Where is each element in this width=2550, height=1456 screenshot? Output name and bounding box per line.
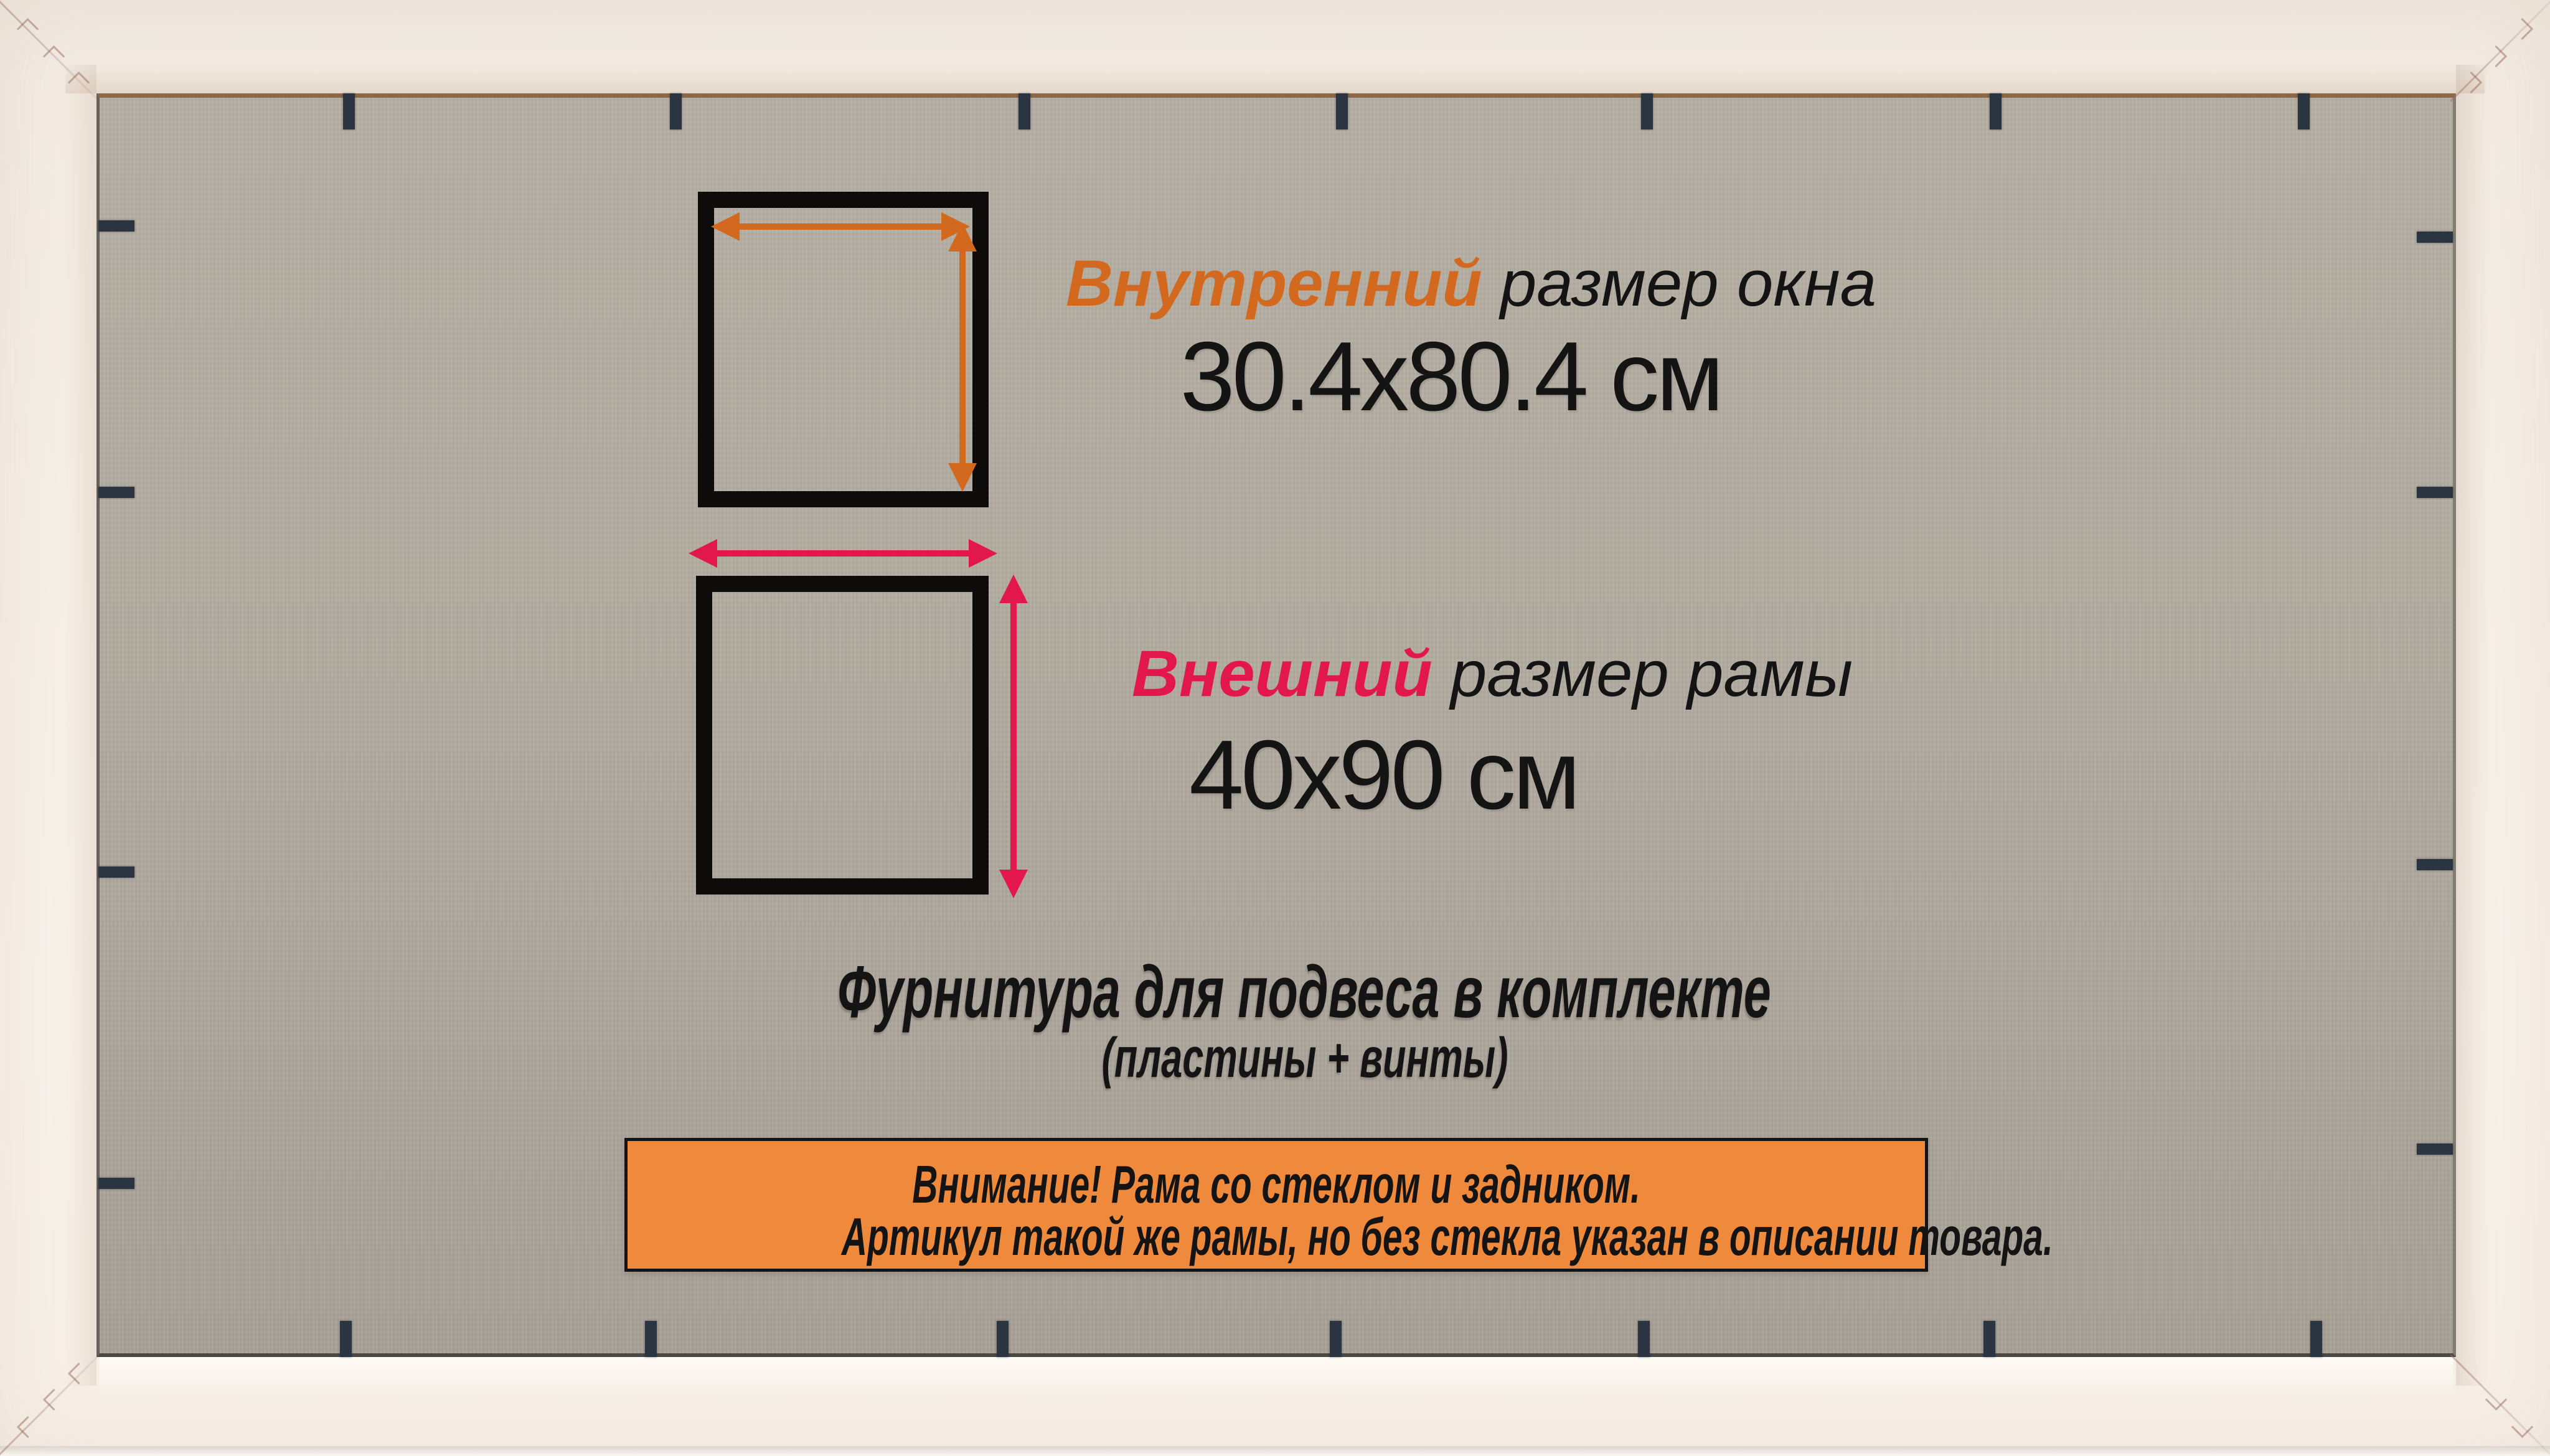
retainer-tab — [1638, 1321, 1650, 1357]
frame-back-photo: Внутренний размер окна 30.4x80.4 см Внеш… — [0, 0, 2550, 1456]
retainer-tab — [2417, 487, 2453, 498]
retainer-tab — [670, 93, 682, 129]
retainer-tab — [1641, 93, 1653, 129]
inner-size-value: 30.4x80.4 см — [641, 327, 2260, 426]
outer-width-arrow-icon — [687, 535, 999, 572]
retainer-tab — [1983, 1321, 1995, 1357]
retainer-tab — [997, 1321, 1009, 1357]
warning-banner: Внимание! Рама со стеклом и задником. Ар… — [624, 1138, 1928, 1272]
retainer-tab — [343, 93, 355, 129]
frame-inner-bevel-right — [2456, 65, 2488, 1386]
inner-width-arrow-icon — [710, 208, 971, 245]
frame-inner-bevel-top — [65, 65, 2485, 93]
retainer-tab — [1336, 93, 1348, 129]
retainer-tab — [645, 1321, 657, 1357]
outer-size-value: 40x90 см — [574, 726, 2193, 824]
outer-size-label-accent: Внешний — [1132, 637, 1433, 710]
hardware-note-line2: (пластины + винты) — [755, 1030, 1855, 1086]
warning-banner-line2: Артикул такой же рамы, но без стекла ука… — [842, 1211, 1711, 1264]
retainer-tab — [98, 220, 134, 232]
frame-inner-bevel-left — [65, 65, 96, 1386]
frame-inner-highlight-bottom — [100, 1357, 2453, 1397]
retainer-tab — [2417, 232, 2453, 243]
inner-size-label-accent: Внутренний — [1066, 247, 1482, 320]
outer-size-label: Внешний размер рамы — [683, 641, 2302, 707]
warning-banner-line1: Внимание! Рама со стеклом и задником. — [842, 1158, 1711, 1211]
retainer-tab — [1330, 1321, 1342, 1357]
outer-size-label-rest: размер рамы — [1451, 637, 1853, 710]
inner-size-label: Внутренний размер окна — [662, 251, 2280, 316]
retainer-tab — [2417, 1144, 2453, 1155]
retainer-tab — [1990, 93, 2002, 129]
retainer-tab — [98, 1178, 134, 1189]
retainer-tab — [98, 867, 134, 878]
retainer-tab — [98, 487, 134, 498]
frame-outer-edge-bottom — [0, 1446, 2550, 1456]
hardware-note-line1: Фурнитура для подвеса в комплекте — [762, 956, 1847, 1029]
retainer-tab — [340, 1321, 352, 1357]
retainer-tab — [1019, 93, 1030, 129]
retainer-tab — [2310, 1321, 2322, 1357]
retainer-tab — [2298, 93, 2310, 129]
retainer-tab — [2417, 859, 2453, 870]
v-nail-mark — [2460, 72, 2482, 93]
inner-size-label-rest: размер окна — [1500, 247, 1876, 320]
